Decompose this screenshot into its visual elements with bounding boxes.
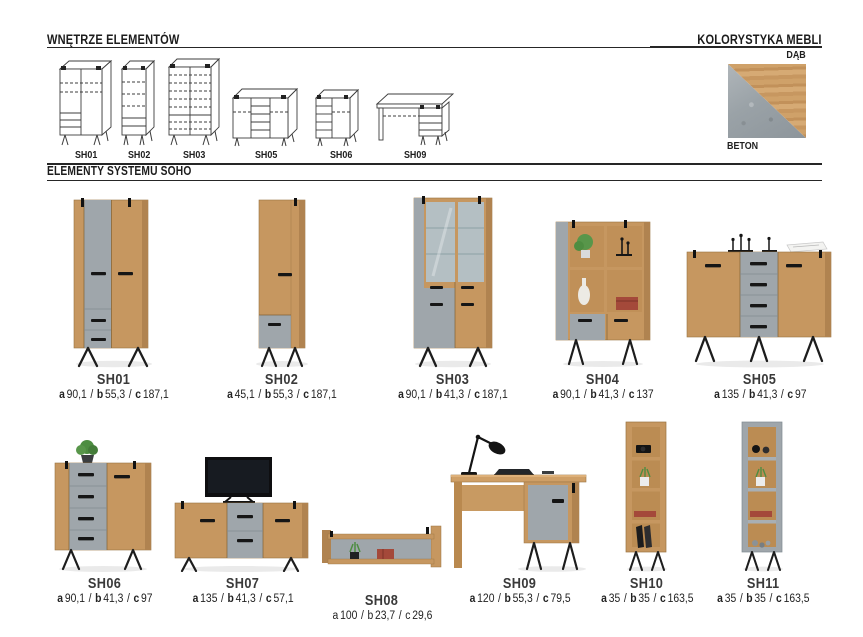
product-photo-sh01 [68,197,160,368]
drawing-label: SH09 [404,149,426,161]
product-dims: a90,1/b41,3/c137 [553,389,654,401]
product-photo-sh06 [51,437,159,572]
product-card-sh01: SH01 a90,1/b55,3/c187,1 [34,190,194,401]
product-name: SH10 [630,575,663,592]
product-name: SH02 [265,371,298,388]
drawing-label: SH02 [128,149,150,161]
product-name: SH01 [97,371,130,388]
line-drawing-icon [227,82,305,148]
product-name: SH09 [503,575,536,592]
product-dims: a120/b55,3/c79,5 [470,593,571,605]
product-photo-sh03 [406,196,500,368]
laptop [494,469,534,475]
product-photo-sh02 [251,197,313,368]
material-swatch [728,64,806,138]
product-photo-sh04 [552,218,654,368]
line-drawing-icon [373,86,457,148]
product-card-sh06: SH06 a90,1/b41,3/c97 [25,424,185,605]
interior-drawing-sh03: SH03 [163,54,225,161]
drawing-label: SH06 [330,149,352,161]
product-card-sh07: SH07 a135/b41,3/c57,1 [163,424,323,605]
product-name: SH11 [747,575,780,592]
interior-drawing-sh05: SH05 [227,82,305,161]
line-drawing-icon [163,54,225,148]
product-dims: a90,1/b41,3/c97 [57,593,152,605]
interior-drawing-sh02: SH02 [115,56,163,161]
interior-drawing-sh09: SH09 [373,86,457,161]
top-rule-accent [650,46,822,48]
product-photo-sh11 [739,419,787,572]
oak-label: DĄB [787,49,806,61]
product-name: SH08 [365,592,398,609]
product-photo-sh08 [320,525,444,572]
drawing-label: SH05 [255,149,277,161]
product-card-sh08: SH08 a100/b23,7/c29,6 [302,424,462,622]
product-dims: a90,1/b55,3/c187,1 [59,389,169,401]
product-name: SH05 [743,371,776,388]
catalog-page: WNĘTRZE ELEMENTÓW KOLORYSTYKA MEBLI SH01 [0,0,863,637]
interior-drawing-sh06: SH06 [310,82,372,161]
product-dims: a35/b35/c163,5 [601,593,693,605]
line-drawing-icon [115,56,163,148]
product-name: SH04 [586,371,619,388]
product-card-sh03: SH03 a90,1/b41,3/c187,1 [373,190,533,401]
product-photo-sh05 [683,233,838,368]
candelabra [728,234,777,253]
product-dims: a35/b35/c163,5 [717,593,809,605]
section-rule-bottom [47,180,822,181]
product-dims: a100/b23,7/c29,6 [332,610,432,622]
section-title-elements: ELEMENTY SYSTEMU SOHO [47,164,191,178]
product-dims: a90,1/b41,3/c187,1 [398,389,508,401]
product-dims: a135/b41,3/c97 [714,389,806,401]
product-card-sh05: SH05 a135/b41,3/c97 [680,190,840,401]
tv [205,457,272,503]
interior-drawing-sh01: SH01 [52,56,120,161]
product-card-sh02: SH02 a45,1/b55,3/c187,1 [202,190,362,401]
product-dims: a135/b41,3/c57,1 [193,593,294,605]
product-name: SH03 [436,371,469,388]
product-name: SH06 [88,575,121,592]
plant [76,440,98,463]
line-drawing-icon [310,82,372,148]
product-photo-sh07 [173,457,313,572]
drawing-label: SH03 [183,149,205,161]
line-drawing-icon [52,56,120,148]
product-card-sh11: SH11 a35/b35/c163,5 [683,424,843,605]
drawing-label: SH01 [75,149,97,161]
product-card-sh04: SH04 a90,1/b41,3/c137 [523,190,683,401]
section-title-interiors: WNĘTRZE ELEMENTÓW [47,32,180,47]
product-photo-sh10 [623,419,671,572]
product-dims: a45,1/b55,3/c187,1 [227,389,337,401]
product-name: SH07 [226,575,259,592]
concrete-label: BETON [727,140,758,152]
